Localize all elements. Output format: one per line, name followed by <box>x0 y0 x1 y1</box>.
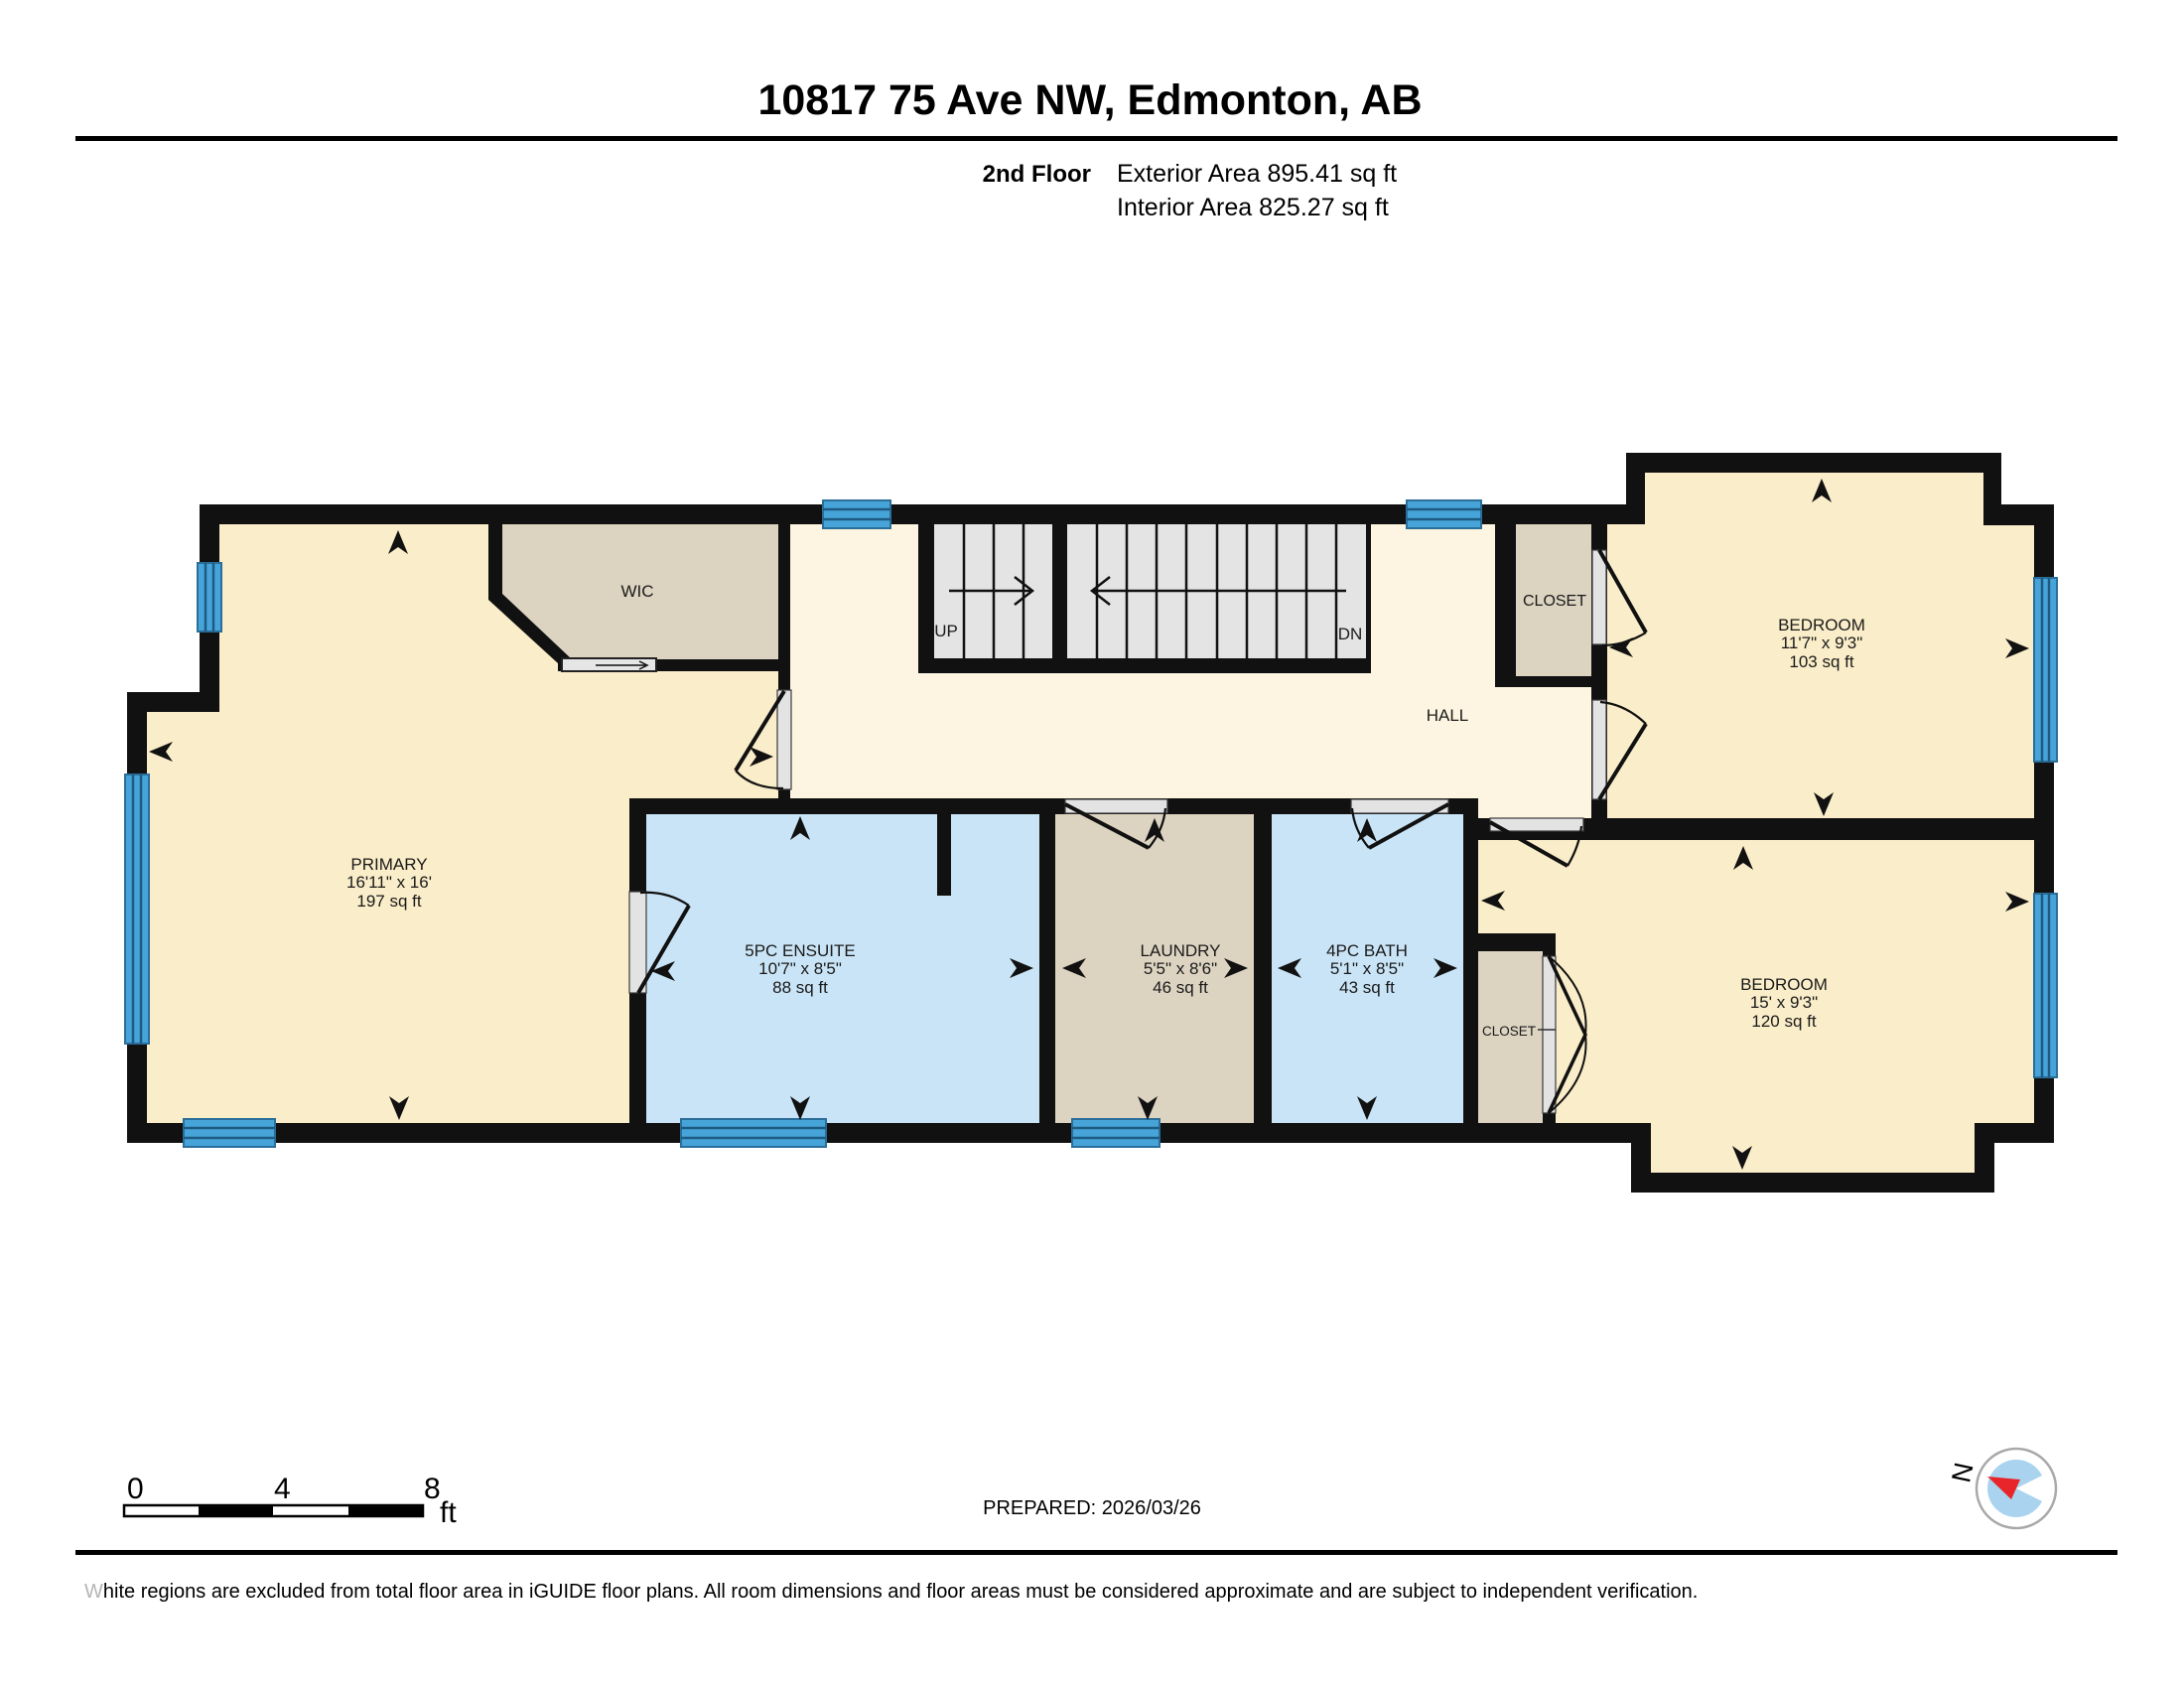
svg-text:ft: ft <box>440 1496 457 1529</box>
svg-text:46 sq ft: 46 sq ft <box>1153 978 1208 997</box>
svg-text:4PC BATH: 4PC BATH <box>1326 941 1408 960</box>
svg-text:Interior Area 825.27 sq ft: Interior Area 825.27 sq ft <box>1117 194 1389 221</box>
svg-text:Exterior Area 895.41 sq ft: Exterior Area 895.41 sq ft <box>1117 160 1397 188</box>
svg-text:HALL: HALL <box>1427 706 1469 725</box>
svg-text:PREPARED: 2026/03/26: PREPARED: 2026/03/26 <box>983 1497 1201 1519</box>
svg-text:11'7" x 9'3": 11'7" x 9'3" <box>1781 633 1863 652</box>
svg-text:15' x 9'3": 15' x 9'3" <box>1750 993 1818 1012</box>
svg-text:10817 75 Ave NW, Edmonton, AB: 10817 75 Ave NW, Edmonton, AB <box>757 76 1422 124</box>
svg-text:LAUNDRY: LAUNDRY <box>1141 941 1221 960</box>
svg-text:0: 0 <box>127 1473 144 1505</box>
svg-text:5'5" x 8'6": 5'5" x 8'6" <box>1144 959 1217 978</box>
svg-text:10'7" x 8'5": 10'7" x 8'5" <box>758 959 842 978</box>
svg-text:BEDROOM: BEDROOM <box>1778 616 1865 634</box>
svg-text:2nd Floor: 2nd Floor <box>983 161 1091 188</box>
svg-text:16'11" x 16': 16'11" x 16' <box>346 873 432 892</box>
svg-text:5PC ENSUITE: 5PC ENSUITE <box>745 941 855 960</box>
svg-text:88 sq ft: 88 sq ft <box>772 978 828 997</box>
svg-text:4: 4 <box>274 1473 291 1505</box>
svg-text:White regions are excluded fro: White regions are excluded from total fl… <box>84 1581 1698 1603</box>
svg-text:43 sq ft: 43 sq ft <box>1339 978 1395 997</box>
svg-text:8: 8 <box>424 1473 441 1505</box>
svg-text:PRIMARY: PRIMARY <box>350 855 427 874</box>
svg-text:197 sq ft: 197 sq ft <box>356 892 421 911</box>
svg-text:CLOSET: CLOSET <box>1482 1024 1536 1039</box>
svg-text:5'1" x 8'5": 5'1" x 8'5" <box>1330 959 1404 978</box>
svg-text:CLOSET: CLOSET <box>1523 593 1586 610</box>
svg-text:103 sq ft: 103 sq ft <box>1789 652 1853 671</box>
svg-text:120 sq ft: 120 sq ft <box>1751 1012 1816 1031</box>
svg-text:WIC: WIC <box>620 582 653 601</box>
svg-text:UP: UP <box>934 622 958 640</box>
svg-text:BEDROOM: BEDROOM <box>1740 975 1828 994</box>
svg-text:DN: DN <box>1338 625 1363 643</box>
